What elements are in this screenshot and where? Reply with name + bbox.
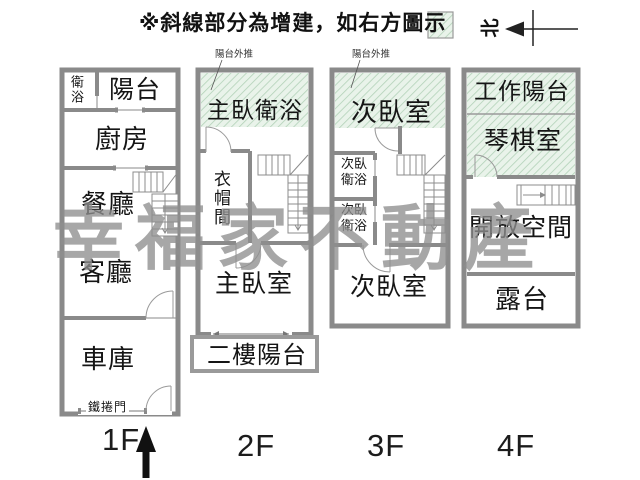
room-label-1f-balcony: 陽台 [109, 77, 161, 102]
room-label-3f-bedroom-upper: 次臥室 [351, 100, 432, 126]
room-label-4f-open-space: 開放空間 [469, 215, 573, 240]
room-label-1f-garage: 車庫 [81, 347, 135, 373]
room-label-1f-living: 客廳 [79, 260, 133, 286]
room-label-1f-kitchen: 廚房 [95, 127, 149, 153]
room-label-4f-work-balcony: 工作陽台 [474, 81, 570, 104]
room-label-1f-bath: 衛浴 [69, 75, 82, 105]
balcony-out-annotation-3f: 陽台外推 [352, 50, 390, 60]
room-label-2f-master-bedroom: 主臥室 [215, 271, 293, 296]
floor-label-2f: 2F [237, 430, 275, 461]
balcony-out-annotation-2f: 陽台外推 [215, 50, 253, 60]
room-label-3f-bedroom-lower: 次臥室 [350, 274, 428, 299]
room-label-3f-bath-2: 次臥衛浴 [338, 203, 370, 236]
room-label-4f-terrace: 露台 [495, 287, 549, 313]
floor-1f-stairs [133, 172, 178, 236]
floor-label-4f: 4F [497, 430, 535, 461]
room-label-2f-master-bath: 主臥衛浴 [207, 100, 303, 123]
legend-note: ※斜線部分為增建，如右方圖示 [139, 13, 446, 34]
floor-4f-stairs [517, 185, 575, 205]
room-label-2f-closet: 衣帽間 [211, 170, 228, 227]
room-label-1f-dining: 餐廳 [81, 192, 135, 218]
floor-3f-stairs [397, 155, 445, 233]
floor-plan-image: ※斜線部分為增建，如右方圖示 北 陽台外推 陽台外推 衛浴 陽台 廚房 餐廳 客… [0, 0, 640, 480]
floor-2f-stairs [258, 155, 308, 233]
room-label-3f-bath-1: 次臥衛浴 [338, 157, 370, 190]
room-label-1f-rolling-door: 鐵捲門 [86, 401, 129, 413]
north-label: 北 [482, 17, 501, 37]
floor-label-3f: 3F [367, 430, 405, 461]
room-label-4f-piano-room: 琴棋室 [484, 128, 562, 153]
floor-label-1f: 1F [102, 424, 140, 455]
north-arrow [505, 10, 578, 46]
room-label-2f-balcony: 二樓陽台 [207, 343, 307, 367]
